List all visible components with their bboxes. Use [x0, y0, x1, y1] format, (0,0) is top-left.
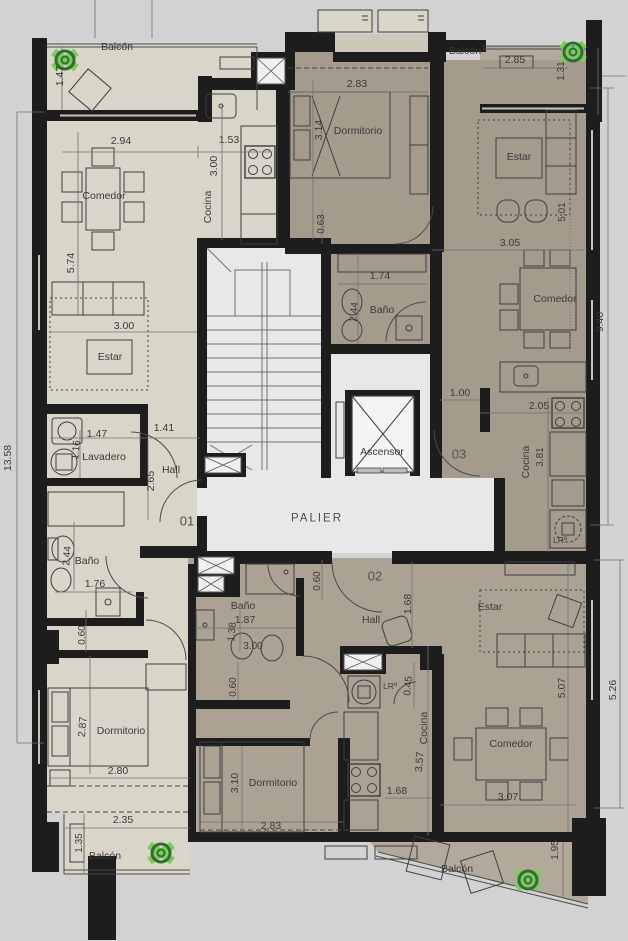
room-estar-hall-01 [47, 244, 197, 553]
floor-fills [47, 34, 588, 904]
room-unit-02 [188, 558, 586, 838]
floor-plan: Balcón1.472.941.533.00CocinaComedor5.743… [0, 0, 628, 941]
roof-planters [318, 10, 428, 32]
room-cocina-01-nook [210, 88, 276, 122]
planter-ledge [335, 34, 428, 52]
room-comedor-01 [47, 121, 276, 244]
plan-drawing [0, 0, 628, 941]
plant-icon [147, 842, 175, 865]
room-stairs [197, 248, 331, 478]
room-bano-03 [331, 252, 430, 344]
room-palier [197, 478, 494, 553]
room-balcon-02 [370, 842, 588, 904]
room-dormitorio-03 [290, 52, 430, 254]
room-bano-01 [47, 553, 188, 661]
plant-icon [514, 869, 542, 892]
plant-icon [51, 49, 79, 72]
plant-icon [559, 41, 587, 64]
